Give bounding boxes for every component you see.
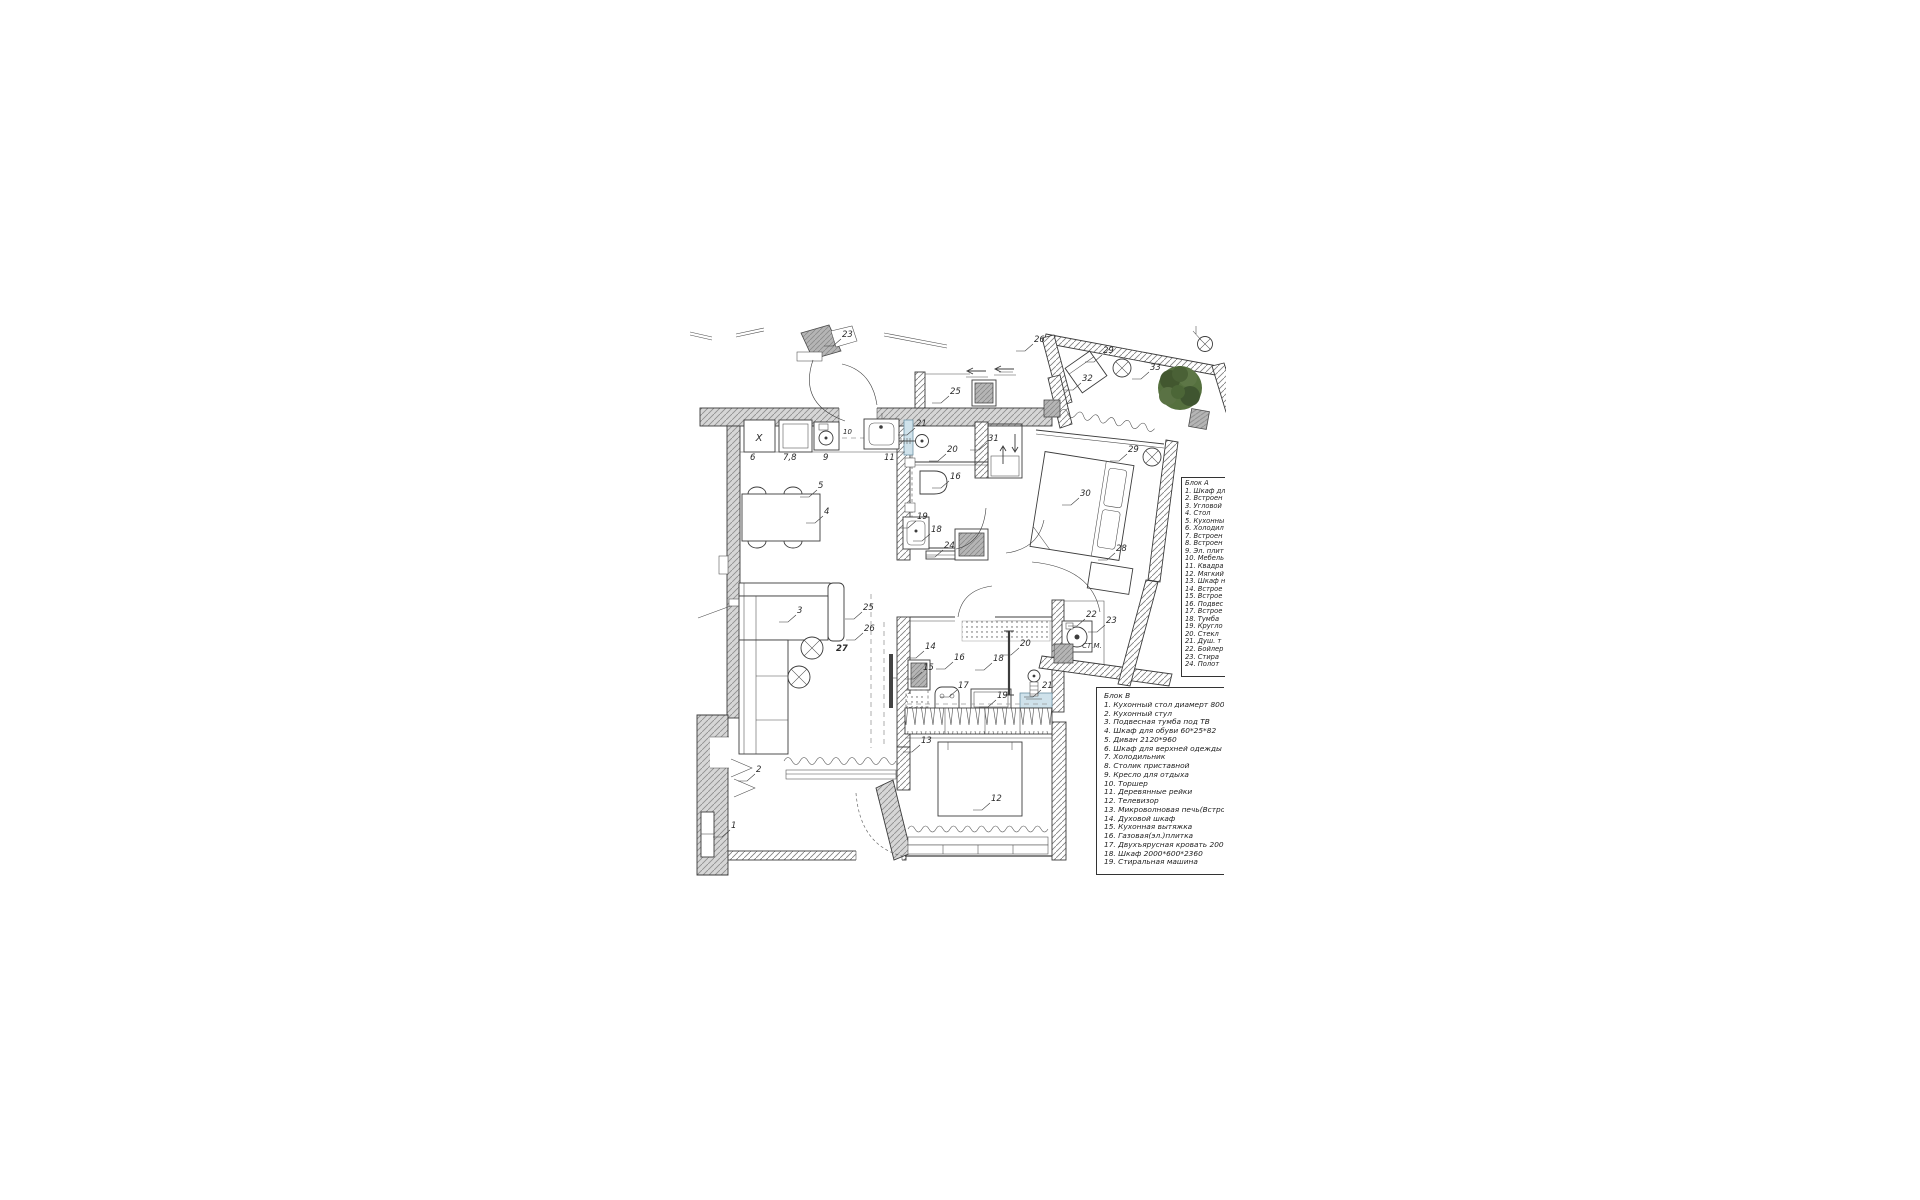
sofa-chaise	[739, 640, 788, 754]
terrace-chair	[1065, 351, 1107, 393]
shaft-box	[1044, 400, 1060, 417]
label-leader	[1132, 372, 1149, 379]
plan-label-4: 4	[824, 507, 829, 517]
bedroom	[1006, 409, 1161, 595]
plan-label-5: 5	[818, 481, 823, 491]
plan-label-18: 18	[931, 525, 942, 535]
washing-machine-label: СТ.М.	[1082, 642, 1102, 650]
coat-hooks	[731, 759, 755, 797]
plan-label-25: 25	[863, 603, 874, 613]
plan-label-24: 24	[944, 541, 955, 551]
shaft-box	[1054, 644, 1073, 663]
sofa-back	[739, 583, 830, 596]
arrow-left-2	[995, 366, 1014, 372]
shaft-box	[1189, 409, 1210, 430]
plan-label-27: 27	[836, 644, 848, 654]
plan-label-18: 18	[993, 654, 1004, 664]
shaft-box	[975, 383, 993, 403]
dining-set	[742, 487, 820, 548]
fridge-x-mark: X	[755, 433, 764, 444]
plan-label-23: 23	[842, 330, 853, 340]
plan-label-20: 20	[947, 445, 958, 455]
label-leader	[1016, 344, 1033, 351]
top-fragments	[690, 325, 1213, 421]
closet-28	[1087, 562, 1133, 594]
sofa-seat	[739, 596, 828, 640]
plan-label-29: 29	[1128, 445, 1139, 455]
kitchen-b	[905, 586, 1052, 734]
tv-wall-mounted	[889, 654, 893, 708]
plan-label-26: 26	[864, 624, 875, 634]
wall-terrace-right	[1212, 363, 1226, 412]
plan-label-12: 12	[991, 794, 1002, 804]
plan-label-1: 1	[731, 821, 736, 831]
plan-label-16: 16	[950, 472, 961, 482]
plan-label-22: 22	[1086, 610, 1097, 620]
plan-label-31: 31	[988, 434, 999, 444]
plan-label-10: 10	[843, 428, 852, 436]
plan-label-3: 3	[797, 606, 802, 616]
plan-label-26: 26	[1034, 335, 1045, 345]
wall-left	[727, 426, 740, 718]
plan-label-21: 21	[916, 419, 927, 429]
label-leader	[929, 454, 946, 461]
plan-label-6: 6	[750, 453, 756, 463]
legend-item: 24. Полот	[1185, 661, 1225, 669]
chairs-bottom	[748, 541, 802, 548]
label-leader	[936, 662, 953, 669]
shower-glass	[904, 420, 913, 455]
radiator-zigzag	[784, 758, 896, 765]
plan-label-11: 11	[884, 453, 895, 463]
plan-label-2: 2	[756, 765, 761, 775]
plan-label-33: 33	[1150, 363, 1161, 373]
dining-table	[742, 494, 820, 541]
plan-label-15: 15	[923, 663, 934, 673]
floor-plan-page: 232625293233293167,891011212016305419182…	[0, 0, 1920, 1200]
toilet	[920, 471, 947, 494]
insulation-zigzag	[1059, 409, 1155, 433]
room-31	[988, 424, 1022, 478]
curtain-zigzag	[908, 826, 1048, 832]
legend-block-b-wrap: Блок В 1. Кухонный стол диамерт 8002. Ку…	[1096, 687, 1224, 877]
bottom-room	[908, 742, 1048, 854]
shoe-cabinet	[701, 812, 714, 857]
shelf	[786, 770, 896, 779]
tree	[1158, 366, 1202, 410]
label-leader	[738, 774, 755, 781]
legend-item: 19. Стиральная машина	[1104, 858, 1224, 867]
plan-label-14: 14	[925, 642, 936, 652]
plan-label-20: 20	[1020, 639, 1031, 649]
label-leader	[975, 663, 992, 670]
label-leader	[845, 612, 862, 619]
plan-label-29: 29	[1103, 346, 1114, 356]
chairs-top	[748, 487, 802, 494]
wall-hall-kids	[876, 780, 911, 860]
plan-label-16: 16	[954, 653, 965, 663]
legend-block-a: Блок А 1. Шкаф дл2. Встроен3. Угловой4. …	[1181, 477, 1225, 677]
plan-label-9: 9	[823, 453, 828, 463]
plan-label-7,8: 7,8	[783, 453, 797, 463]
label-leader	[846, 633, 863, 640]
plan-label-17: 17	[958, 681, 969, 691]
sofa-arm	[828, 583, 844, 641]
plan-label-21: 21	[1042, 681, 1053, 691]
plan-label-30: 30	[1080, 489, 1091, 499]
plan-label-19: 19	[997, 691, 1008, 701]
plan-label-19: 19	[917, 512, 928, 522]
legend-block-a-wrap: Блок А 1. Шкаф дл2. Встроен3. Угловой4. …	[1181, 477, 1225, 679]
arrow-down	[1012, 434, 1018, 452]
door-arc-kitchenB	[958, 586, 992, 617]
wardrobe-hangers	[905, 708, 1052, 734]
door-arc-hall-top	[842, 364, 877, 405]
plan-label-23: 23	[1106, 616, 1117, 626]
plan-label-25: 25	[950, 387, 961, 397]
label-leader	[1002, 648, 1019, 655]
bed-bottom-room	[938, 742, 1022, 816]
vent-shaft	[959, 533, 984, 556]
arrow-left-1	[967, 368, 986, 374]
plan-label-32: 32	[1082, 374, 1093, 384]
legend-block-b: Блок В 1. Кухонный стол диамерт 8002. Ку…	[1096, 687, 1224, 875]
entrance-hall	[701, 758, 902, 858]
plan-label-13: 13	[921, 736, 932, 746]
label-leader	[1110, 454, 1127, 461]
window-sill	[908, 837, 1048, 845]
label-leader	[932, 396, 949, 403]
plan-label-28: 28	[1116, 544, 1127, 554]
